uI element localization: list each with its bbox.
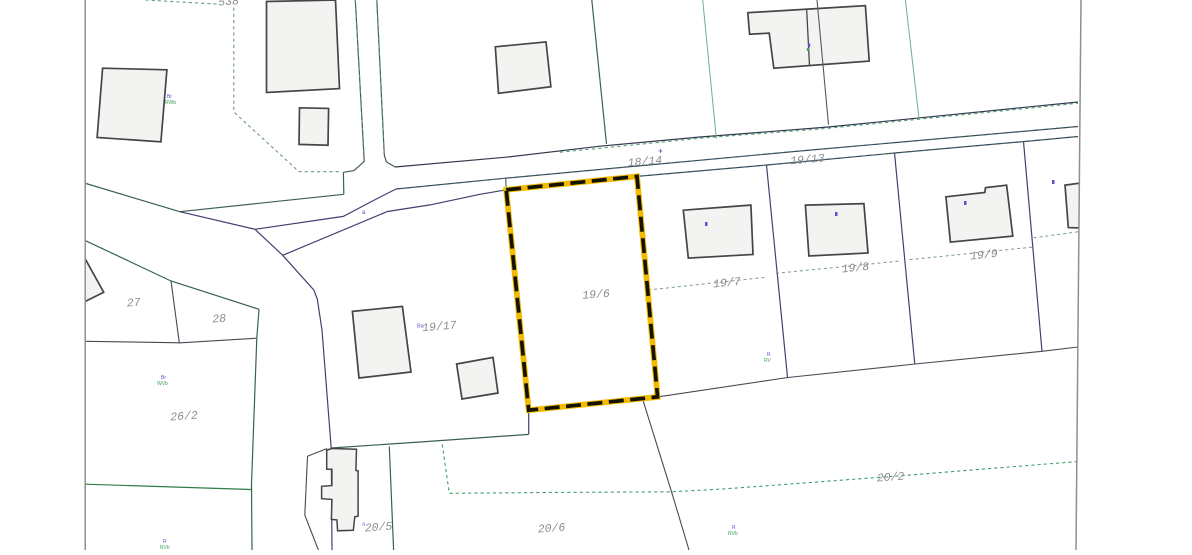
svg-text:27: 27 [126, 297, 141, 311]
svg-text:26/2: 26/2 [170, 410, 199, 425]
svg-text:RV: RV [764, 358, 772, 364]
svg-text:538: 538 [218, 0, 240, 10]
svg-text:RVb: RVb [160, 545, 170, 550]
svg-text:Ba: Ba [417, 324, 425, 330]
svg-text:RWb: RWb [165, 100, 176, 106]
svg-text:20/6: 20/6 [537, 522, 566, 537]
svg-text:19/6: 19/6 [582, 288, 611, 303]
svg-text:20/5: 20/5 [364, 521, 393, 536]
svg-text:RVb: RVb [728, 531, 738, 537]
svg-text:28: 28 [212, 313, 227, 327]
svg-text:a: a [362, 521, 365, 527]
svg-text:WVb: WVb [157, 381, 168, 387]
svg-text:20/2: 20/2 [876, 471, 905, 486]
